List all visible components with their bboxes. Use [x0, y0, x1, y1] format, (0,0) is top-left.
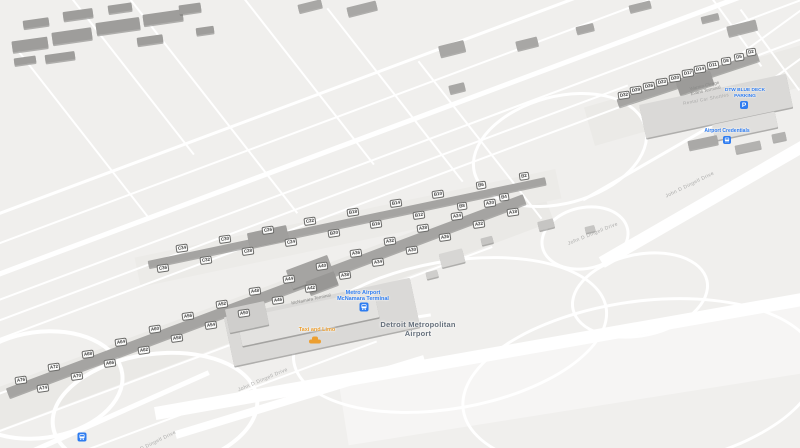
mcnamara-terminal-roof-label: McNamara Terminal	[291, 292, 331, 305]
car-icon[interactable]	[309, 337, 321, 344]
gate-badge-B6[interactable]: B6	[476, 181, 487, 190]
rental-car-shuttles-label: Rental Car Shuttles	[683, 92, 730, 106]
credentials-transit-icon[interactable]	[723, 136, 731, 144]
gate-badge-D5[interactable]: D5	[734, 53, 745, 62]
transit-station-label[interactable]: Metro Airport McNamara Terminal	[337, 290, 389, 302]
gate-badge-B8[interactable]: B8	[457, 202, 468, 211]
gate-badge-D8[interactable]: D8	[721, 57, 732, 66]
airport-credentials-label[interactable]: Airport Credentials	[704, 128, 749, 134]
station-line2: McNamara Terminal	[337, 296, 389, 302]
marker-layer: McNamara Terminal Metro Airport McNamara…	[0, 0, 800, 448]
transit-icon[interactable]	[360, 303, 369, 312]
airport-name-label[interactable]: Detroit Metropolitan Airport	[380, 320, 455, 338]
gate-badge-D2[interactable]: D2	[746, 48, 757, 57]
bus-icon[interactable]	[78, 433, 87, 442]
map-canvas[interactable]: A76A74A72A70A68A66A64A62A60A58A56A54A52A…	[0, 0, 800, 448]
taxi-limo-label[interactable]: Taxi and Limo	[299, 327, 336, 333]
blue-deck-parking-label[interactable]: DTW BLUE DECK PARKING	[725, 88, 765, 100]
gate-badge-B4[interactable]: B4	[499, 193, 510, 202]
parking-line2: PARKING	[725, 94, 765, 100]
parking-icon[interactable]: P	[740, 101, 748, 109]
airport-name-line2: Airport	[380, 329, 455, 338]
airport-name-line1: Detroit Metropolitan	[380, 320, 455, 329]
gate-badge-B2[interactable]: B2	[519, 172, 530, 181]
car-icon-body	[309, 340, 321, 344]
